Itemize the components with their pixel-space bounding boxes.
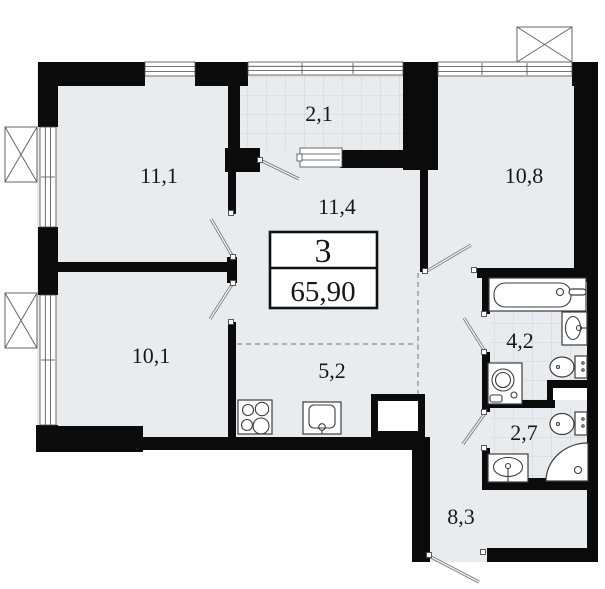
wall-segment [56, 262, 237, 272]
total-area-label: 65,90 [290, 276, 355, 308]
loggia-radiator [297, 148, 342, 167]
floorplan-canvas: 3 65,90 11,1 2,1 10,8 11,4 10,1 5,2 4,2 … [0, 0, 605, 589]
stove [238, 400, 272, 434]
bathroom-toilet [550, 356, 587, 378]
wall-segment [574, 62, 598, 282]
wall-segment [228, 170, 236, 214]
ac-basket-top-right [517, 27, 572, 62]
wall-segment [487, 548, 598, 562]
area-label-entry-hall: 8,3 [447, 504, 475, 529]
wall-segment [340, 150, 405, 168]
wall-segment [553, 380, 590, 388]
vent-shaft-interior [378, 401, 418, 431]
wc-sink [488, 454, 528, 482]
wall-segment [195, 62, 248, 86]
loggia-glazing [248, 62, 403, 75]
wall-segment [143, 437, 412, 450]
area-label-hall: 11,4 [318, 194, 356, 219]
wall-segment [403, 62, 438, 170]
ac-basket-left-bottom [5, 293, 37, 348]
wall-segment [38, 62, 58, 127]
wall-segment [420, 170, 428, 272]
window-left-living1 [40, 127, 56, 227]
info-box: 3 65,90 [270, 232, 377, 308]
wall-segment [225, 148, 260, 172]
wc-toilet [550, 412, 587, 435]
wall-segment [36, 426, 143, 452]
washing-machine [488, 363, 522, 404]
area-label-living3: 10,1 [132, 343, 171, 368]
rooms-count-label: 3 [315, 233, 332, 270]
area-label-loggia: 2,1 [305, 101, 333, 126]
window-left-living3 [40, 295, 56, 425]
wall-segment [587, 278, 598, 562]
bathtub [489, 278, 586, 311]
bathroom-sink [562, 312, 588, 345]
area-label-kitchen: 5,2 [318, 358, 346, 383]
wall-segment [38, 227, 58, 295]
pipe-niche [553, 388, 587, 400]
window-top-living1 [145, 62, 195, 76]
ac-basket-left-top [5, 127, 37, 182]
area-label-living1: 11,1 [140, 163, 178, 188]
wall-segment [477, 268, 598, 278]
window-top-living2 [438, 62, 572, 76]
kitchen-sink [303, 402, 341, 434]
wall-segment [412, 437, 430, 562]
floorplan-svg: 3 65,90 11,1 2,1 10,8 11,4 10,1 5,2 4,2 … [0, 0, 605, 589]
area-label-bathroom: 4,2 [506, 328, 534, 353]
area-label-living2: 10,8 [505, 163, 544, 188]
wall-segment [228, 322, 236, 438]
area-label-wc: 2,7 [510, 420, 538, 445]
